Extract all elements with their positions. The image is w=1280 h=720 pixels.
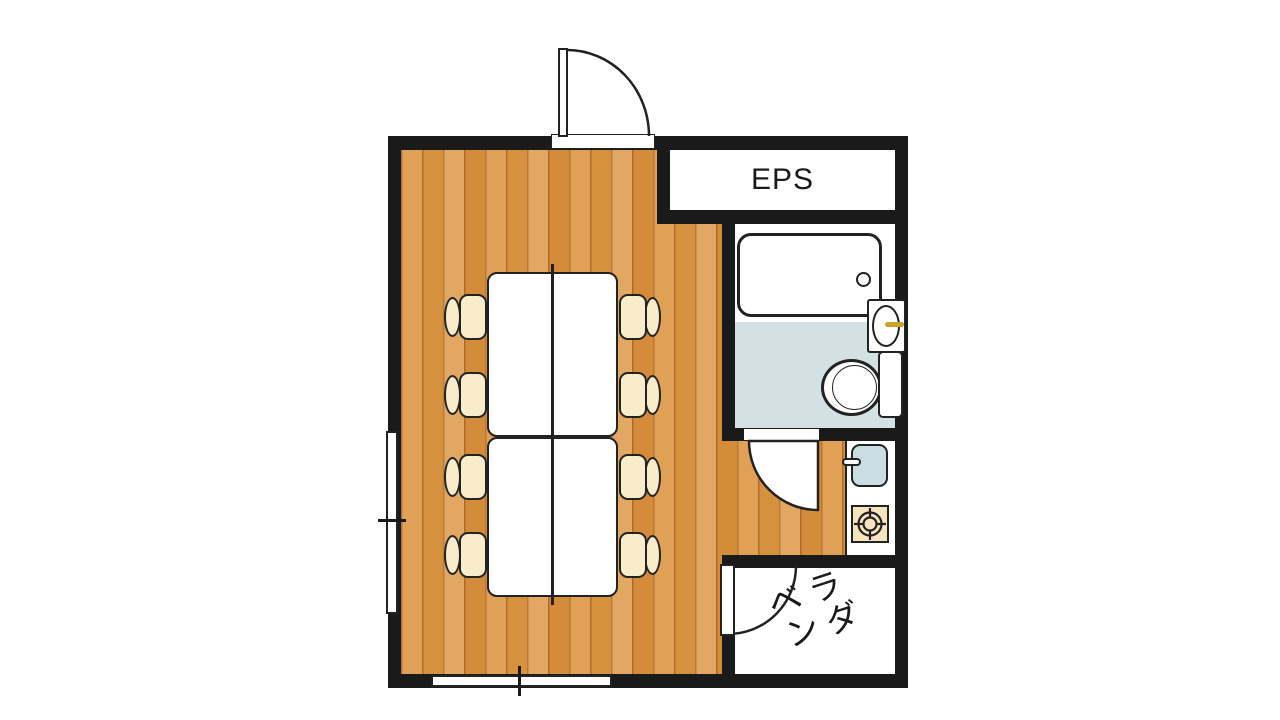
floor-plan-canvas: EPS ベラ: [0, 0, 1280, 720]
wall-bathroom-left: [722, 212, 735, 441]
window-left: [386, 431, 398, 614]
entrance-door-swing: [540, 40, 670, 140]
window-bottom-tick: [518, 666, 521, 696]
stove-burner-icon: [853, 507, 887, 541]
veranda-door-swing: [715, 555, 810, 645]
table-centerline: [551, 264, 554, 605]
stove: [851, 505, 889, 543]
chair-seat: [619, 372, 647, 418]
kitchen-faucet: [842, 458, 861, 466]
chair-seat: [619, 532, 647, 578]
eps-room-interior: EPS: [670, 150, 895, 210]
window-left-tick: [378, 519, 406, 522]
chair-seat: [619, 454, 647, 500]
bathroom-door-swing: [740, 435, 830, 520]
chair-seat: [459, 532, 487, 578]
bathtub-drain: [856, 272, 871, 287]
chair-seat: [459, 454, 487, 500]
toilet-tank: [878, 351, 903, 418]
toilet-bowl-inner: [832, 365, 877, 410]
chair-seat: [459, 372, 487, 418]
washbasin-faucet: [885, 322, 904, 327]
chair-seat: [619, 294, 647, 340]
window-bottom: [431, 675, 612, 687]
eps-label: EPS: [751, 163, 814, 197]
chair-seat: [459, 294, 487, 340]
